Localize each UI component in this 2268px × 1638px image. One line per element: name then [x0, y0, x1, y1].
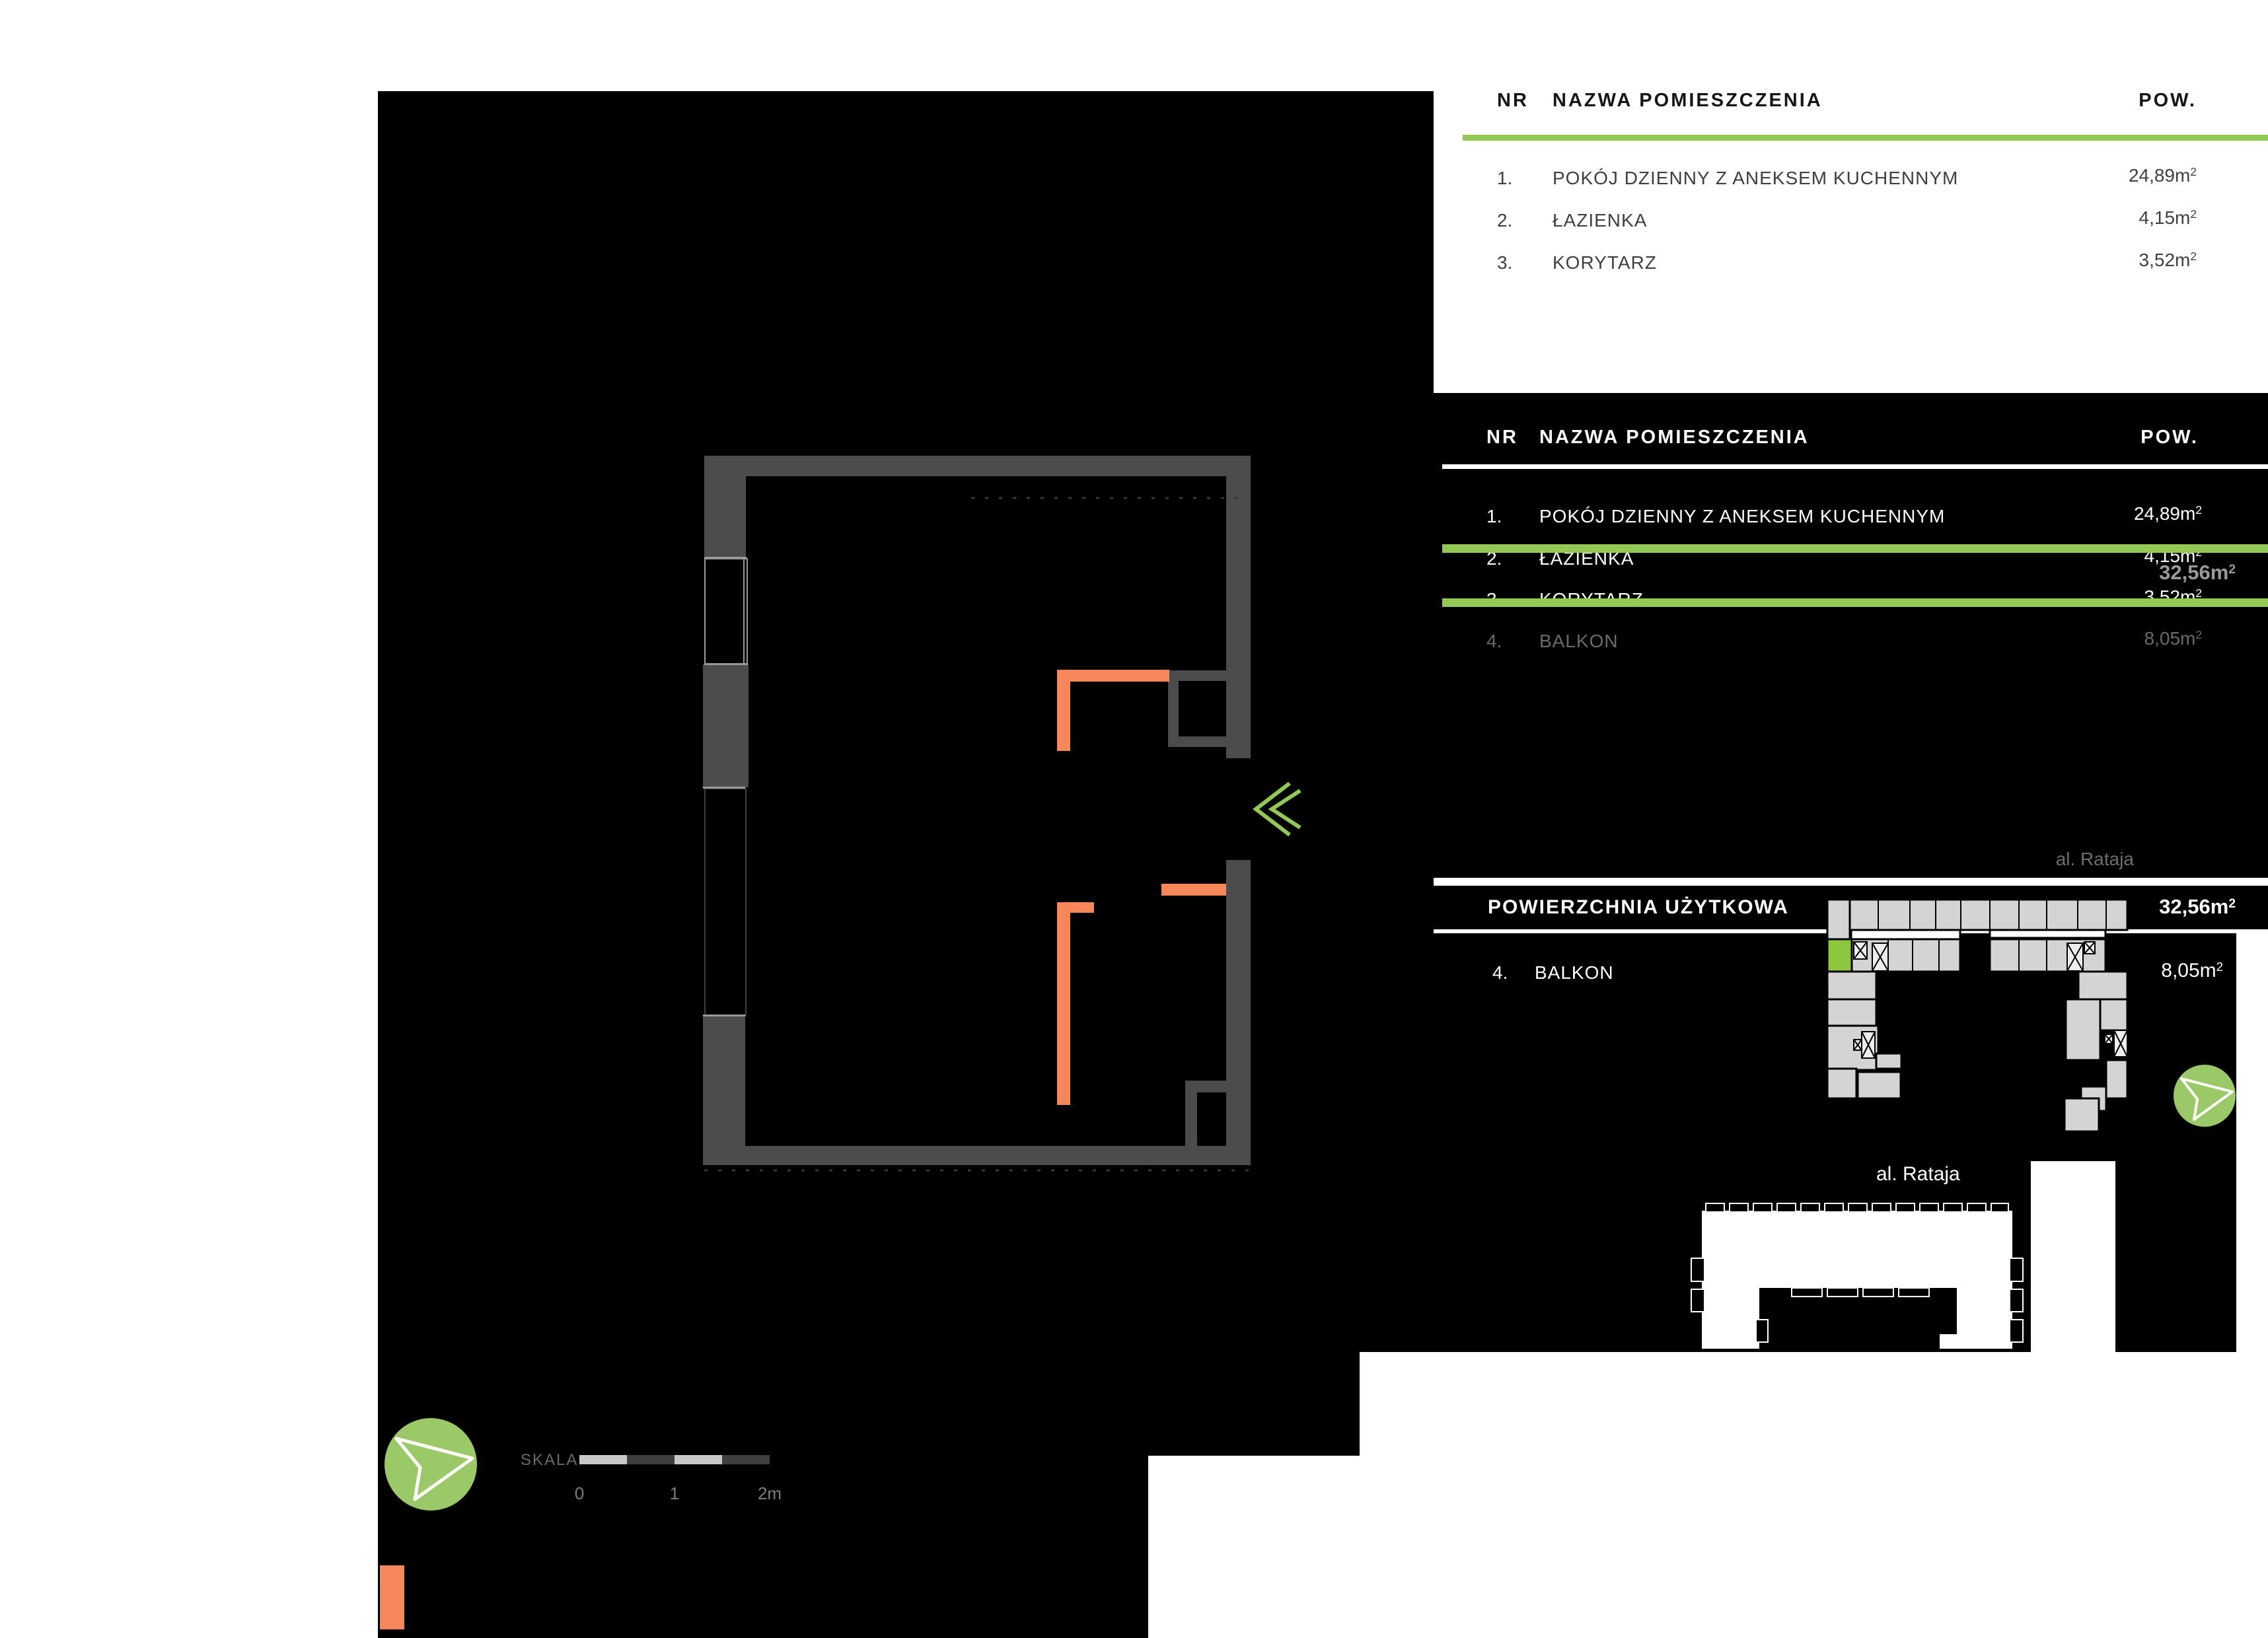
highlighted-unit[interactable]: [1827, 939, 1852, 972]
background-cutout: [2031, 1161, 2115, 1352]
building-top-wing: [1827, 900, 2127, 930]
floorplan-page: NR NAZWA POMIESZCZENIA POW. 1. POKÓJ DZI…: [0, 0, 2268, 1638]
building-left-wing: [1827, 972, 1876, 999]
siteplan-overlay: [0, 0, 2268, 1638]
building-right-wing: [2078, 972, 2127, 999]
siteplan-inverted: [1691, 1203, 2023, 1349]
siteplan-building: [1827, 900, 2127, 1131]
compass-small: [2174, 1065, 2236, 1127]
